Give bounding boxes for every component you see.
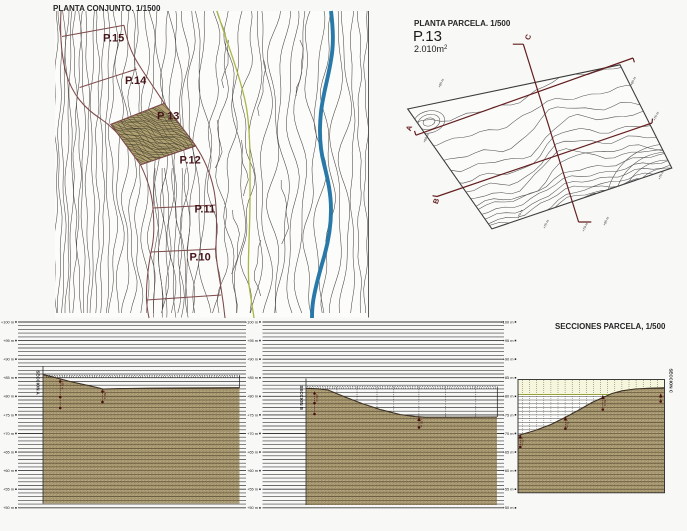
svg-text:+55 m: +55 m	[503, 487, 514, 492]
svg-text:+80 m: +80 m	[3, 394, 14, 399]
svg-text:+60 m: +60 m	[3, 468, 14, 473]
svg-text:+50 m: +50 m	[247, 505, 258, 510]
svg-text:+70 m: +70 m	[247, 431, 258, 436]
svg-text:P 13: P 13	[157, 111, 179, 123]
svg-text:+55 m: +55 m	[247, 487, 258, 492]
svg-text:+75 m: +75 m	[566, 420, 570, 429]
svg-text:SECCION B: SECCION B	[299, 386, 304, 410]
svg-text:+75 m: +75 m	[247, 412, 258, 417]
svg-text:+80 m: +80 m	[315, 394, 319, 403]
svg-text:+100 m: +100 m	[1, 319, 14, 324]
svg-text:+95 m: +95 m	[3, 338, 14, 343]
svg-text:+85 m: +85 m	[503, 375, 514, 380]
svg-text:+100 m: +100 m	[245, 319, 258, 324]
svg-text:+70 m: +70 m	[503, 431, 514, 436]
svg-text:+75 m: +75 m	[419, 419, 423, 428]
svg-text:+80 m: +80 m	[503, 394, 514, 399]
svg-text:+85 m: +85 m	[247, 375, 258, 380]
svg-text:2.010m2: 2.010m2	[414, 44, 448, 54]
svg-text:P.13: P.13	[413, 28, 442, 45]
svg-text:+55 m: +55 m	[3, 487, 14, 492]
svg-text:+95 m: +95 m	[503, 338, 514, 343]
svg-text:+85 m: +85 m	[3, 375, 14, 380]
svg-text:+50 m: +50 m	[503, 505, 514, 510]
svg-text:+95 m: +95 m	[247, 338, 258, 343]
svg-text:PLANTA PARCELA. 1/500: PLANTA PARCELA. 1/500	[414, 19, 511, 28]
svg-text:P.12: P.12	[180, 155, 201, 167]
svg-text:P.10: P.10	[190, 252, 211, 264]
svg-text:+90 m: +90 m	[503, 357, 514, 362]
svg-text:+70 m: +70 m	[521, 438, 525, 447]
svg-text:+80 m: +80 m	[603, 398, 607, 407]
svg-text:SECCION C: SECCION C	[669, 369, 674, 394]
svg-text:P.11: P.11	[195, 204, 216, 216]
svg-text:SECCIONES PARCELA, 1/500: SECCIONES PARCELA, 1/500	[555, 322, 666, 331]
svg-text:+60 m: +60 m	[503, 468, 514, 473]
svg-text:+70 m: +70 m	[3, 431, 14, 436]
svg-text:P.15: P.15	[103, 33, 124, 45]
svg-text:+75 m: +75 m	[3, 412, 14, 417]
svg-text:SECCION A: SECCION A	[35, 371, 40, 396]
svg-text:+80 m: +80 m	[247, 394, 258, 399]
svg-text:+85 m: +85 m	[61, 381, 65, 390]
svg-text:+90 m: +90 m	[3, 357, 14, 362]
svg-text:+80 m: +80 m	[103, 391, 107, 400]
svg-text:+90 m: +90 m	[247, 357, 258, 362]
svg-text:+100 m: +100 m	[500, 319, 513, 324]
svg-text:+50 m: +50 m	[3, 505, 14, 510]
svg-text:+65 m: +65 m	[503, 450, 514, 455]
svg-text:+65 m: +65 m	[247, 450, 258, 455]
svg-text:+65 m: +65 m	[3, 450, 14, 455]
svg-text:P.14: P.14	[125, 75, 147, 87]
svg-text:+60 m: +60 m	[247, 468, 258, 473]
svg-text:+75 m: +75 m	[503, 412, 514, 417]
